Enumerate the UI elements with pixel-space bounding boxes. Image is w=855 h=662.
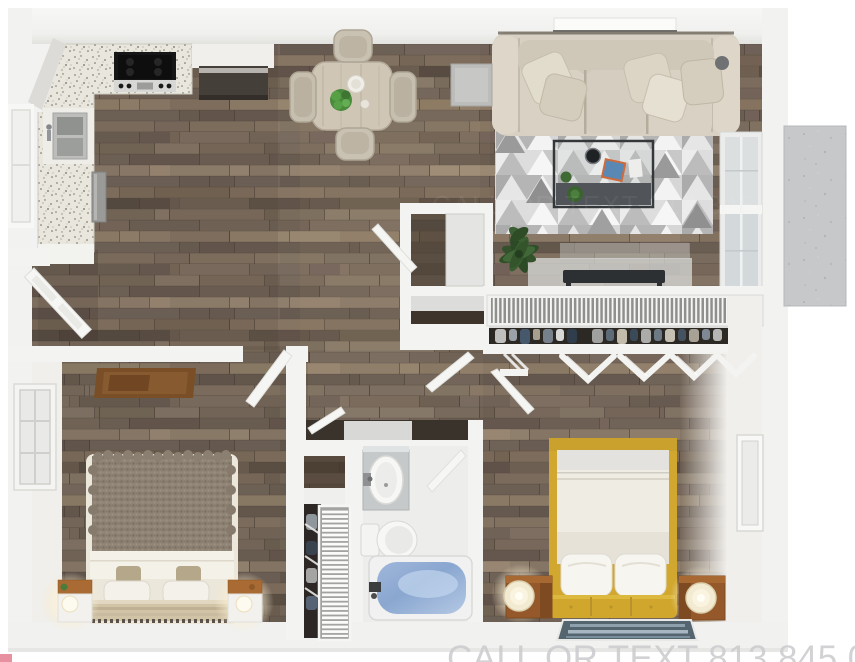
svg-text:CALL OR TEXT 813 845 0: CALL OR TEXT 813 845 0 — [447, 639, 855, 662]
svg-text:CALL OR TEXT 813 845 0: CALL OR TEXT 813 845 0 — [432, 190, 782, 220]
